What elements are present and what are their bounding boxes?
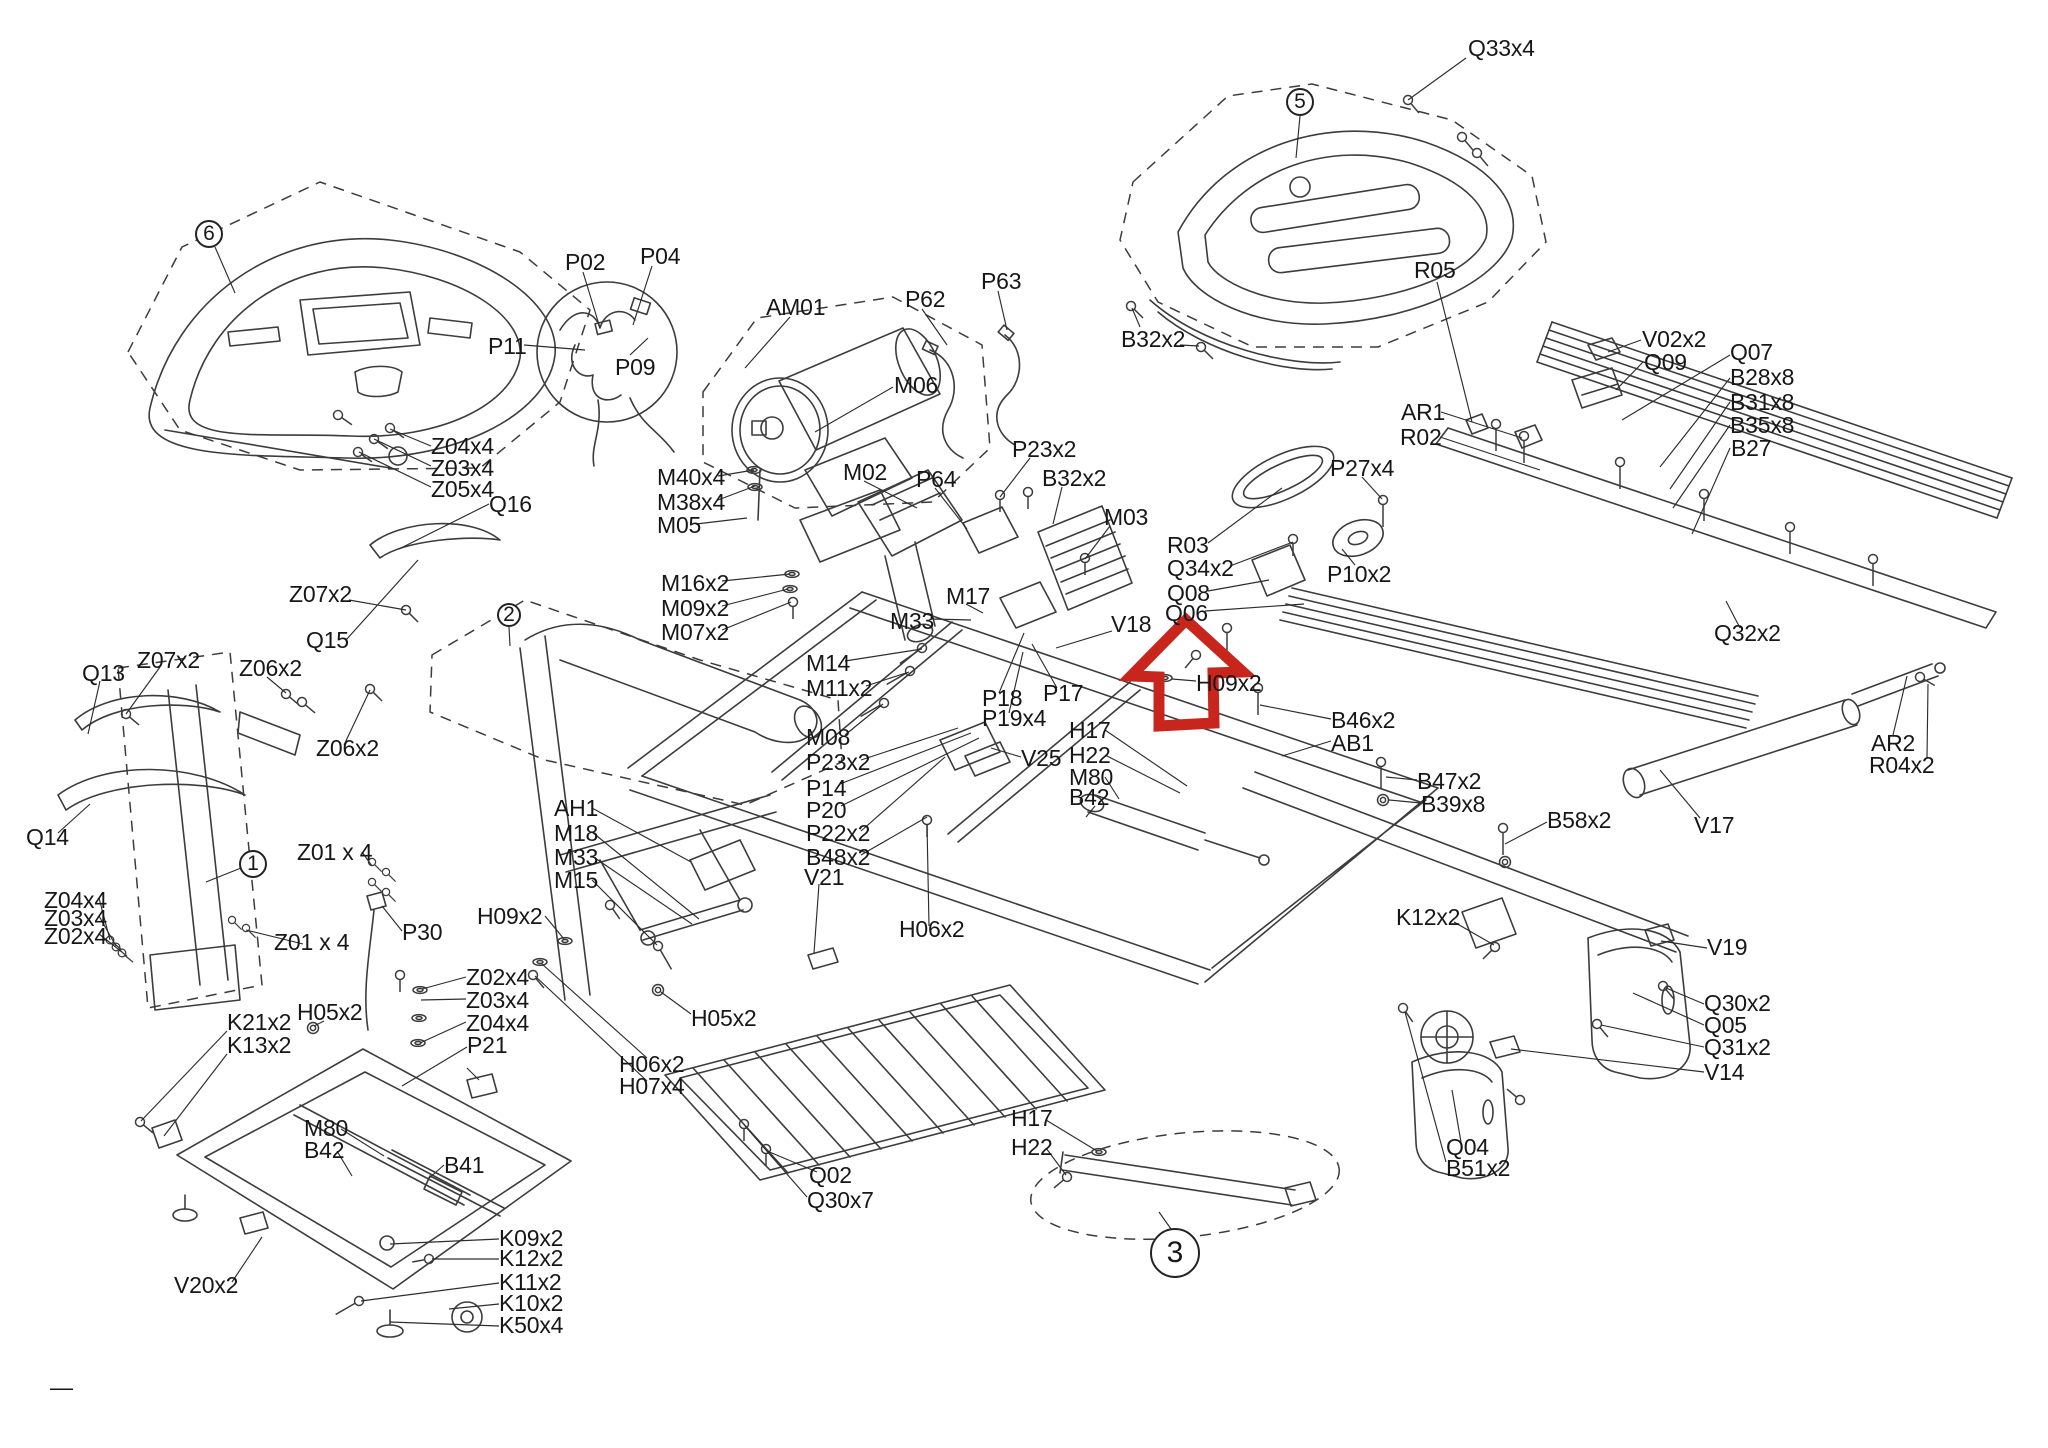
part-label: Q13 (82, 661, 125, 685)
part-label: Z07x2 (137, 648, 200, 672)
part-label: B42 (1069, 785, 1109, 809)
part-label: P11 (488, 334, 527, 358)
part-label: B42 (304, 1138, 344, 1162)
part-label: M14 (806, 651, 850, 675)
part-label: P04 (640, 244, 680, 268)
part-label: H06x2 (899, 917, 965, 941)
part-label: H07x4 (619, 1074, 685, 1098)
part-label: P64 (916, 467, 956, 491)
part-label: M08 (806, 725, 850, 749)
part-label: V17 (1694, 813, 1734, 837)
part-label: Z06x2 (239, 656, 302, 680)
part-label: R04x2 (1869, 753, 1935, 777)
part-label: V18 (1111, 612, 1151, 636)
part-label: R02 (1400, 425, 1442, 449)
part-label: K12x2 (1396, 905, 1460, 929)
part-label: M03 (1104, 505, 1148, 529)
part-label: Q34x2 (1167, 556, 1234, 580)
part-label: M40x4 (657, 465, 725, 489)
part-label: M07x2 (661, 620, 729, 644)
callout-balloon: 3 (1150, 1228, 1200, 1278)
part-label: Z03x4 (466, 988, 529, 1012)
part-label: Z02x4 (466, 965, 529, 989)
part-label: B51x2 (1446, 1156, 1510, 1180)
part-label: Q15 (306, 628, 349, 652)
part-label: Q31x2 (1704, 1035, 1771, 1059)
part-label: M33 (554, 845, 598, 869)
part-label: B31x8 (1730, 390, 1794, 414)
part-label: Z05x4 (431, 477, 494, 501)
part-label: M38x4 (657, 490, 725, 514)
part-label: Z01 x 4 (297, 840, 372, 864)
part-label: K13x2 (227, 1033, 291, 1057)
part-label: B41 (444, 1153, 484, 1177)
part-label: Q33x4 (1468, 36, 1535, 60)
part-label: B58x2 (1547, 808, 1611, 832)
part-label: B27 (1731, 436, 1771, 460)
part-label: P27x4 (1330, 456, 1394, 480)
part-label: M17 (946, 584, 990, 608)
part-label: AH1 (554, 796, 598, 820)
part-label: M18 (554, 821, 598, 845)
part-label: M05 (657, 513, 701, 537)
part-label: K21x2 (227, 1010, 291, 1034)
part-label: Q07 (1730, 340, 1773, 364)
part-label: Z01 x 4 (274, 930, 349, 954)
part-label: AM01 (766, 295, 825, 319)
part-label: P30 (402, 920, 442, 944)
part-label: Z02x4 (44, 924, 107, 948)
part-label: K50x4 (499, 1313, 563, 1337)
part-label: H17 (1069, 718, 1111, 742)
part-label: Q02 (809, 1163, 852, 1187)
exploded-parts-diagram: Q33x4R05B32x2P04P02P63P62AM01P11V02x2Q09… (0, 0, 2048, 1448)
part-label: M06 (894, 373, 938, 397)
part-label: Q14 (26, 825, 69, 849)
part-label: B28x8 (1730, 365, 1794, 389)
part-label: P02 (565, 250, 605, 274)
part-label: Q09 (1644, 350, 1687, 374)
part-label: — (50, 1375, 73, 1399)
part-label: M16x2 (661, 571, 729, 595)
part-label: M33 (890, 609, 934, 633)
part-label: V25 (1021, 746, 1061, 770)
part-label: P17 (1043, 681, 1083, 705)
part-label: B46x2 (1331, 708, 1395, 732)
callout-balloon: 6 (195, 220, 223, 248)
callout-balloon: 1 (239, 850, 267, 878)
part-label: V20x2 (174, 1273, 238, 1297)
part-label: P23x2 (1012, 437, 1076, 461)
part-label: H09x2 (1196, 671, 1262, 695)
part-label: Q32x2 (1714, 621, 1781, 645)
part-label: Z07x2 (289, 582, 352, 606)
part-label: B39x8 (1421, 792, 1485, 816)
part-label: AR1 (1401, 400, 1445, 424)
part-label: P10x2 (1327, 562, 1391, 586)
part-label: H05x2 (297, 1000, 363, 1024)
part-label: K12x2 (499, 1246, 563, 1270)
part-label: M02 (843, 460, 887, 484)
part-label: AB1 (1331, 731, 1374, 755)
part-label: Q30x7 (807, 1188, 874, 1212)
part-label: M09x2 (661, 596, 729, 620)
part-label: B35x8 (1730, 413, 1794, 437)
part-label: M11x2 (806, 676, 872, 700)
part-label: H22 (1011, 1135, 1053, 1159)
part-label: Z06x2 (316, 736, 379, 760)
part-label: P09 (615, 355, 655, 379)
part-label: V02x2 (1642, 327, 1706, 351)
part-label: P22x2 (806, 821, 870, 845)
part-label: P20 (806, 798, 846, 822)
part-label: P21 (467, 1033, 507, 1057)
part-label: H17 (1011, 1106, 1053, 1130)
part-label: V21 (804, 865, 844, 889)
part-label: P23x2 (806, 750, 870, 774)
part-label: H05x2 (691, 1006, 757, 1030)
part-label: B32x2 (1121, 327, 1185, 351)
part-label: Q06 (1165, 601, 1208, 625)
part-label: B32x2 (1042, 466, 1106, 490)
part-label: V14 (1704, 1060, 1744, 1084)
part-label: P62 (905, 287, 945, 311)
part-label: R03 (1167, 533, 1209, 557)
part-label: Q16 (489, 492, 532, 516)
part-label: P19x4 (982, 706, 1046, 730)
part-label: M15 (554, 868, 598, 892)
part-label: V19 (1707, 935, 1747, 959)
callout-balloon: 5 (1286, 88, 1314, 116)
part-label: P63 (981, 269, 1021, 293)
part-label: R05 (1414, 258, 1456, 282)
callout-balloon: 2 (497, 603, 521, 627)
part-label: B47x2 (1417, 769, 1481, 793)
part-label: H09x2 (477, 904, 543, 928)
